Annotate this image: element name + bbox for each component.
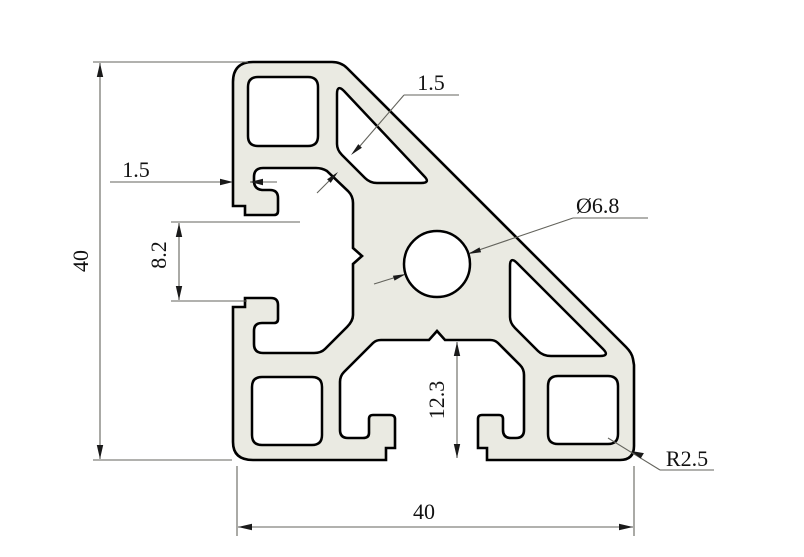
dim-label-slot-depth: 12.3 — [424, 381, 449, 420]
dim-label-width: 40 — [413, 499, 435, 524]
dim-label-diagonal-wall: 1.5 — [417, 70, 445, 95]
dim-overall-width: 40 — [237, 466, 634, 536]
dim-label-center-bore: Ø6.8 — [576, 193, 619, 218]
dim-label-height: 40 — [68, 250, 93, 272]
cavity-square-bottom-right — [548, 376, 618, 444]
arrowhead-right — [619, 524, 633, 530]
cavity-square-bottom-left — [252, 377, 322, 445]
dim-slot-depth: 12.3 — [424, 342, 460, 458]
arrowhead-down — [454, 444, 460, 458]
arrowhead-up — [454, 342, 460, 356]
center-bore-hole — [404, 231, 470, 297]
dim-label-slot-opening: 8.2 — [146, 241, 171, 269]
arrowhead-left — [238, 524, 252, 530]
arrowhead-right — [220, 179, 233, 185]
dim-label-left-wall: 1.5 — [122, 157, 150, 182]
dim-label-corner-radius: R2.5 — [666, 446, 708, 471]
arrowhead-up — [97, 63, 103, 77]
arrowhead-down — [97, 445, 103, 459]
dim-slot-opening: 8.2 — [146, 222, 300, 301]
technical-drawing-page: 40 8.2 1.5 1.5 Ø6.8 — [0, 0, 804, 557]
arrowhead-up — [176, 223, 182, 237]
cavity-square-top-left — [248, 77, 318, 146]
arrowhead-down — [176, 286, 182, 300]
technical-drawing-canvas: 40 8.2 1.5 1.5 Ø6.8 — [0, 0, 804, 557]
